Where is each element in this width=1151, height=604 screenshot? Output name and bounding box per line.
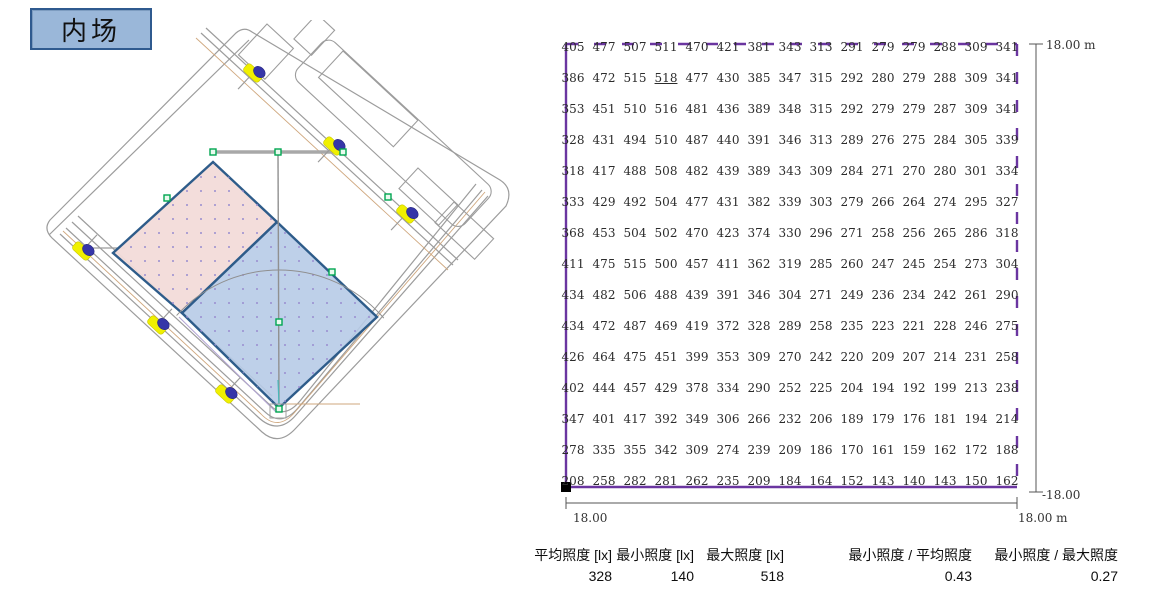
- grid-cell: 346: [779, 133, 802, 147]
- grid-cell: 286: [965, 226, 988, 240]
- grid-cell: 242: [810, 350, 833, 364]
- grid-cell: 288: [934, 40, 957, 54]
- grid-cell: 258: [872, 226, 895, 240]
- grid-cell: 411: [562, 257, 585, 271]
- grid-cell: 172: [965, 443, 988, 457]
- grid-cell: 209: [748, 474, 771, 488]
- grid-cell: 252: [779, 381, 802, 395]
- grid-cell: 434: [562, 319, 585, 333]
- grid-cell: 162: [934, 443, 957, 457]
- grid-cell: 194: [872, 381, 895, 395]
- grid-cell: 430: [717, 71, 740, 85]
- grid-cell: 231: [965, 350, 988, 364]
- grid-cell: 453: [593, 226, 616, 240]
- grid-cell: 492: [624, 195, 647, 209]
- grid-cell: 162: [996, 474, 1019, 488]
- grid-cell: 318: [996, 226, 1019, 240]
- grid-cell: 330: [779, 226, 802, 240]
- grid-cell: 188: [996, 443, 1019, 457]
- grid-cell: 266: [748, 412, 771, 426]
- grid-cell: 391: [748, 133, 771, 147]
- grid-cell: 209: [872, 350, 895, 364]
- grid-cell: 213: [965, 381, 988, 395]
- grid-cell: 385: [748, 71, 771, 85]
- grid-cell: 339: [996, 133, 1019, 147]
- grid-cell: 328: [748, 319, 771, 333]
- grid-cell: 313: [810, 40, 833, 54]
- stat-value: 518: [614, 567, 784, 585]
- stat-label: 最小照度 / 最大照度: [948, 546, 1118, 564]
- grid-cell: 261: [965, 288, 988, 302]
- grid-cell: 309: [748, 350, 771, 364]
- grid-cell: 236: [872, 288, 895, 302]
- grid-cell: 341: [996, 40, 1019, 54]
- grid-cell: 482: [686, 164, 709, 178]
- grid-cell: 346: [748, 288, 771, 302]
- grid-cell: 457: [686, 257, 709, 271]
- grid-cell: 500: [655, 257, 678, 271]
- grid-cell: 434: [562, 288, 585, 302]
- grid-cell: 275: [996, 319, 1019, 333]
- grid-cell: 194: [965, 412, 988, 426]
- grid-cell: 266: [872, 195, 895, 209]
- grid-cell: 209: [779, 443, 802, 457]
- grid-cell: 333: [562, 195, 585, 209]
- dimension-label-bottom-right: 18.00 m: [1018, 511, 1068, 525]
- grid-cell: 273: [965, 257, 988, 271]
- grid-cell: 470: [686, 226, 709, 240]
- grid-cell: 279: [841, 195, 864, 209]
- grid-cell: 274: [717, 443, 740, 457]
- grid-cell: 487: [686, 133, 709, 147]
- grid-cell: 506: [624, 288, 647, 302]
- grid-cell: 289: [841, 133, 864, 147]
- grid-cell: 362: [748, 257, 771, 271]
- grid-cell: 315: [810, 71, 833, 85]
- grid-cell: 518: [655, 71, 678, 85]
- grid-cell: 282: [624, 474, 647, 488]
- grid-cell: 264: [903, 195, 926, 209]
- grid-cell: 306: [717, 412, 740, 426]
- grid-cell: 143: [934, 474, 957, 488]
- grid-cell: 304: [996, 257, 1019, 271]
- grid-cell: 368: [562, 226, 585, 240]
- grid-cell: 502: [655, 226, 678, 240]
- grid-cell: 436: [717, 102, 740, 116]
- grid-cell: 258: [810, 319, 833, 333]
- grid-cell: 207: [903, 350, 926, 364]
- grid-cell: 234: [903, 288, 926, 302]
- stat-label: 最大照度 [lx]: [614, 546, 784, 564]
- grid-cell: 386: [562, 71, 585, 85]
- grid-cell: 426: [562, 350, 585, 364]
- grid-cell: 303: [810, 195, 833, 209]
- grid-cell: 290: [748, 381, 771, 395]
- grid-cell: 515: [624, 71, 647, 85]
- grid-cell: 275: [903, 133, 926, 147]
- grid-cell: 343: [779, 40, 802, 54]
- grid-cell: 319: [779, 257, 802, 271]
- grid-cell: 309: [810, 164, 833, 178]
- grid-cell: 242: [934, 288, 957, 302]
- grid-cell: 334: [717, 381, 740, 395]
- grid-cell: 451: [655, 350, 678, 364]
- grid-cell: 280: [934, 164, 957, 178]
- report-canvas: 内场: [0, 0, 1151, 604]
- grid-cell: 511: [655, 40, 678, 54]
- grid-cell: 429: [593, 195, 616, 209]
- grid-cell: 389: [748, 164, 771, 178]
- stat-value: 0.43: [802, 567, 972, 585]
- grid-cell: 228: [934, 319, 957, 333]
- stat-min-over-max: 最小照度 / 最大照度 0.27: [948, 546, 1118, 585]
- grid-cell: 192: [903, 381, 926, 395]
- grid-cell: 235: [717, 474, 740, 488]
- grid-cell: 140: [903, 474, 926, 488]
- grid-cell: 405: [562, 40, 585, 54]
- grid-cell: 309: [965, 71, 988, 85]
- grid-cell: 477: [686, 71, 709, 85]
- grid-cell: 334: [996, 164, 1019, 178]
- grid-cell: 313: [810, 133, 833, 147]
- stat-max-illuminance: 最大照度 [lx] 518: [614, 546, 784, 585]
- grid-cell: 249: [841, 288, 864, 302]
- grid-cell: 284: [841, 164, 864, 178]
- grid-cell: 401: [593, 412, 616, 426]
- grid-cell: 184: [779, 474, 802, 488]
- grid-cell: 464: [593, 350, 616, 364]
- grid-cell: 328: [562, 133, 585, 147]
- grid-cell: 353: [562, 102, 585, 116]
- grid-cell: 349: [686, 412, 709, 426]
- grid-cell: 510: [655, 133, 678, 147]
- grid-cell: 423: [717, 226, 740, 240]
- grid-cell: 504: [624, 226, 647, 240]
- grid-cell: 378: [686, 381, 709, 395]
- grid-cell: 309: [686, 443, 709, 457]
- grid-cell: 374: [748, 226, 771, 240]
- grid-cell: 214: [934, 350, 957, 364]
- grid-cell: 327: [996, 195, 1019, 209]
- grid-cell: 431: [717, 195, 740, 209]
- grid-cell: 152: [841, 474, 864, 488]
- grid-cell: 429: [655, 381, 678, 395]
- grid-cell: 247: [872, 257, 895, 271]
- grid-cell: 315: [810, 102, 833, 116]
- grid-cell: 186: [810, 443, 833, 457]
- grid-cell: 189: [841, 412, 864, 426]
- grid-cell: 296: [810, 226, 833, 240]
- grid-cell: 292: [841, 102, 864, 116]
- grid-cell: 279: [872, 40, 895, 54]
- grid-cell: 181: [934, 412, 957, 426]
- grid-cell: 472: [593, 71, 616, 85]
- grid-cell: 204: [841, 381, 864, 395]
- grid-cell: 411: [717, 257, 740, 271]
- grid-cell: 341: [996, 102, 1019, 116]
- grid-cell: 392: [655, 412, 678, 426]
- grid-cell: 284: [934, 133, 957, 147]
- grid-cell: 504: [655, 195, 678, 209]
- grid-cell: 285: [810, 257, 833, 271]
- grid-cell: 304: [779, 288, 802, 302]
- grid-cell: 382: [748, 195, 771, 209]
- grid-cell: 289: [779, 319, 802, 333]
- grid-cell: 470: [686, 40, 709, 54]
- stat-label: 最小照度 / 平均照度: [802, 546, 972, 564]
- grid-cell: 347: [779, 71, 802, 85]
- grid-cell: 475: [624, 350, 647, 364]
- grid-cell: 516: [655, 102, 678, 116]
- grid-cell: 508: [655, 164, 678, 178]
- dimension-label-right-top: 18.00 m: [1046, 38, 1096, 52]
- grid-cell: 348: [779, 102, 802, 116]
- grid-cell: 440: [717, 133, 740, 147]
- grid-cell: 389: [748, 102, 771, 116]
- grid-cell: 342: [655, 443, 678, 457]
- grid-cell: 475: [593, 257, 616, 271]
- grid-cell: 260: [841, 257, 864, 271]
- grid-cell: 287: [934, 102, 957, 116]
- grid-cell: 232: [779, 412, 802, 426]
- grid-cell: 292: [841, 71, 864, 85]
- grid-cell: 381: [748, 40, 771, 54]
- grid-cell: 488: [624, 164, 647, 178]
- grid-cell: 421: [717, 40, 740, 54]
- grid-cell: 343: [779, 164, 802, 178]
- grid-cell: 510: [624, 102, 647, 116]
- grid-cell: 355: [624, 443, 647, 457]
- dimension-label-bottom-left: 18.00: [573, 511, 607, 525]
- grid-cell: 276: [872, 133, 895, 147]
- grid-cell: 309: [965, 102, 988, 116]
- grid-cell: 515: [624, 257, 647, 271]
- grid-cell: 206: [810, 412, 833, 426]
- grid-cell: 270: [903, 164, 926, 178]
- grid-cell: 274: [934, 195, 957, 209]
- grid-cell: 290: [996, 288, 1019, 302]
- grid-cell: 161: [872, 443, 895, 457]
- grid-cell: 457: [624, 381, 647, 395]
- grid-cell: 279: [872, 102, 895, 116]
- grid-cell: 469: [655, 319, 678, 333]
- grid-cell: 472: [593, 319, 616, 333]
- grid-cell: 372: [717, 319, 740, 333]
- grid-cell: 339: [779, 195, 802, 209]
- grid-cell: 481: [686, 102, 709, 116]
- grid-cell: 164: [810, 474, 833, 488]
- grid-cell: 143: [872, 474, 895, 488]
- grid-cell: 271: [810, 288, 833, 302]
- grid-cell: 150: [965, 474, 988, 488]
- grid-cell: 258: [593, 474, 616, 488]
- grid-cell: 279: [903, 102, 926, 116]
- grid-cell: 223: [872, 319, 895, 333]
- grid-cell: 301: [965, 164, 988, 178]
- grid-cell: 335: [593, 443, 616, 457]
- grid-cell: 254: [934, 257, 957, 271]
- grid-cell: 439: [686, 288, 709, 302]
- grid-cell: 488: [655, 288, 678, 302]
- grid-cell: 271: [872, 164, 895, 178]
- grid-cell: 238: [996, 381, 1019, 395]
- stat-min-over-avg: 最小照度 / 平均照度 0.43: [802, 546, 972, 585]
- grid-cell: 439: [717, 164, 740, 178]
- dimension-label-right-bottom: -18.00: [1042, 488, 1080, 502]
- grid-cell: 305: [965, 133, 988, 147]
- grid-cell: 279: [903, 40, 926, 54]
- grid-cell: 239: [748, 443, 771, 457]
- grid-cell: 288: [934, 71, 957, 85]
- grid-cell: 482: [593, 288, 616, 302]
- grid-cell: 494: [624, 133, 647, 147]
- grid-cell: 279: [903, 71, 926, 85]
- grid-cell: 281: [655, 474, 678, 488]
- grid-cell: 419: [686, 319, 709, 333]
- grid-cell: 477: [593, 40, 616, 54]
- grid-cell: 214: [996, 412, 1019, 426]
- grid-cell: 245: [903, 257, 926, 271]
- grid-cell: 179: [872, 412, 895, 426]
- stat-value: 0.27: [948, 567, 1118, 585]
- grid-cell: 256: [903, 226, 926, 240]
- grid-cell: 176: [903, 412, 926, 426]
- grid-cell: 262: [686, 474, 709, 488]
- grid-cell: 271: [841, 226, 864, 240]
- grid-cell: 487: [624, 319, 647, 333]
- grid-cell: 507: [624, 40, 647, 54]
- grid-cell: 402: [562, 381, 585, 395]
- grid-cell: 391: [717, 288, 740, 302]
- grid-cell: 235: [841, 319, 864, 333]
- grid-cell: 280: [872, 71, 895, 85]
- grid-cell: 353: [717, 350, 740, 364]
- grid-cell: 221: [903, 319, 926, 333]
- grid-cell: 265: [934, 226, 957, 240]
- grid-cell: 270: [779, 350, 802, 364]
- grid-cell: 246: [965, 319, 988, 333]
- grid-cell: 278: [562, 443, 585, 457]
- grid-cell: 291: [841, 40, 864, 54]
- grid-cell: 347: [562, 412, 585, 426]
- grid-cell: 295: [965, 195, 988, 209]
- grid-cell: 341: [996, 71, 1019, 85]
- grid-cell: 431: [593, 133, 616, 147]
- grid-cell: 220: [841, 350, 864, 364]
- grid-cell: 417: [624, 412, 647, 426]
- grid-cell: 399: [686, 350, 709, 364]
- grid-cell: 477: [686, 195, 709, 209]
- grid-cell: 417: [593, 164, 616, 178]
- grid-cell: 318: [562, 164, 585, 178]
- grid-cell: 225: [810, 381, 833, 395]
- grid-cell: 451: [593, 102, 616, 116]
- grid-cell: 208: [562, 474, 585, 488]
- grid-cell: 258: [996, 350, 1019, 364]
- grid-cell: 444: [593, 381, 616, 395]
- grid-cell: 199: [934, 381, 957, 395]
- grid-cell: 159: [903, 443, 926, 457]
- grid-cell: 309: [965, 40, 988, 54]
- grid-cell: 170: [841, 443, 864, 457]
